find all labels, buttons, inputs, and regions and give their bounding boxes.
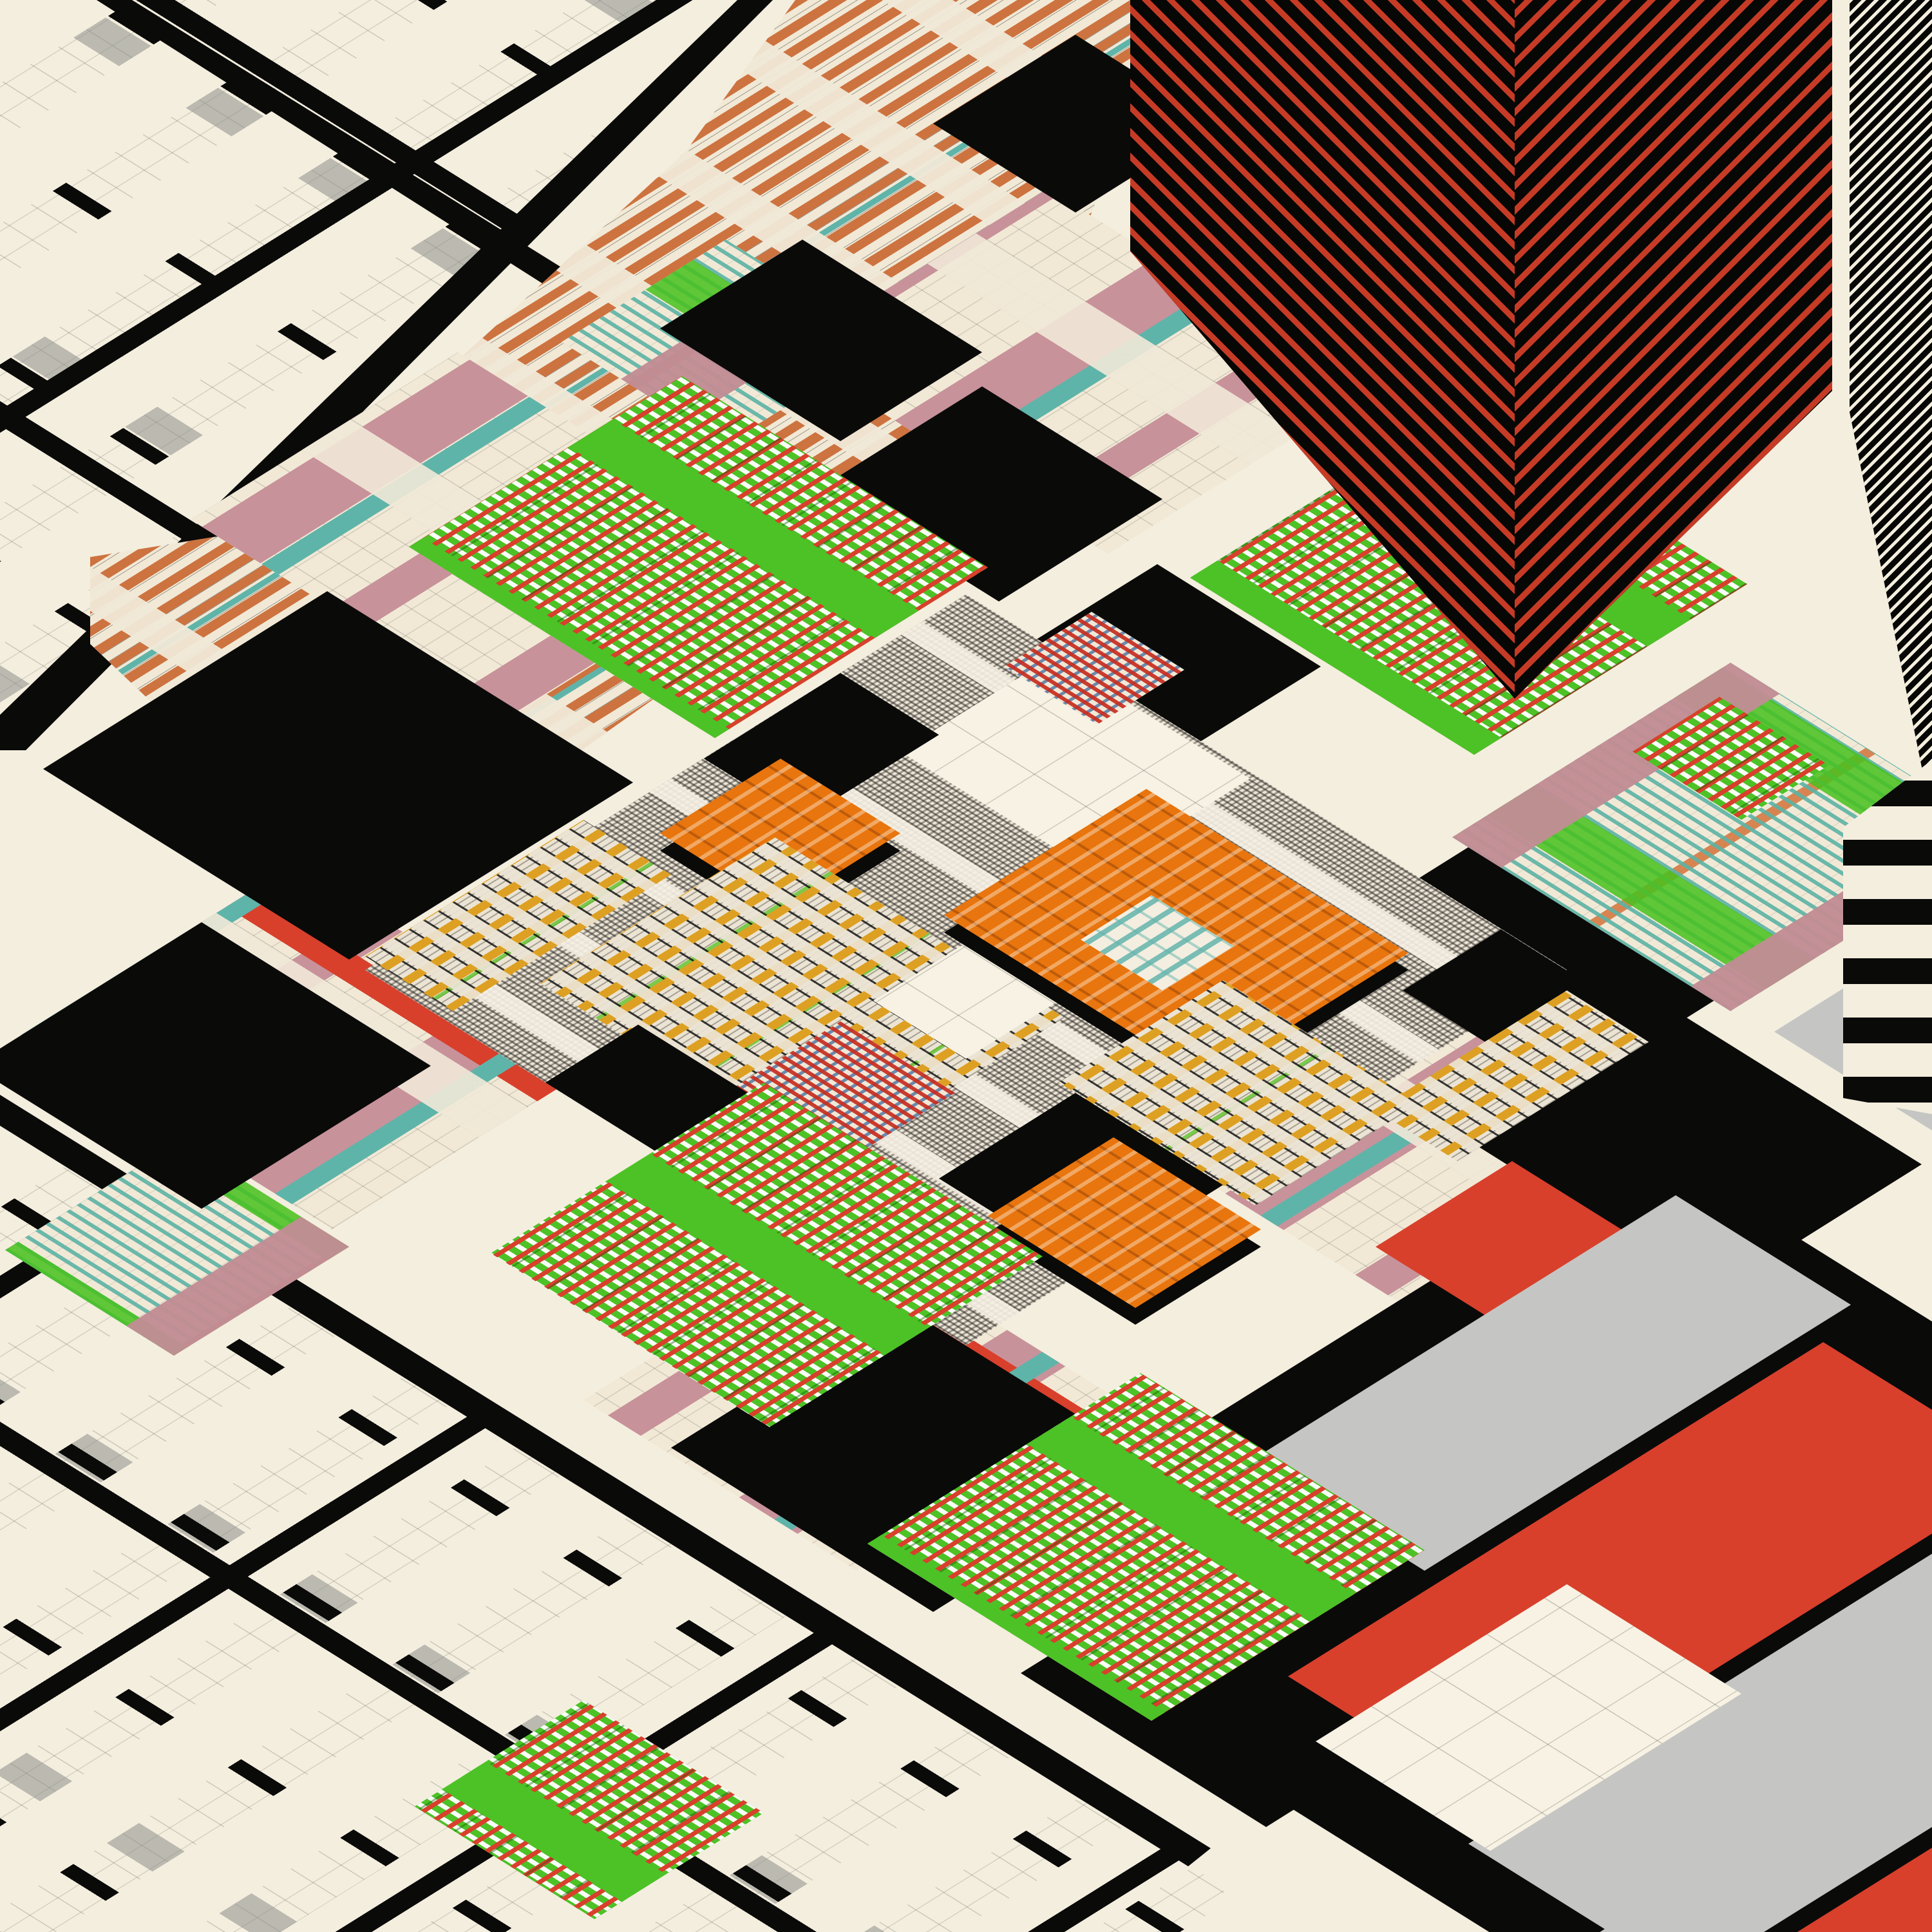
artwork-canvas: [0, 0, 1932, 1932]
